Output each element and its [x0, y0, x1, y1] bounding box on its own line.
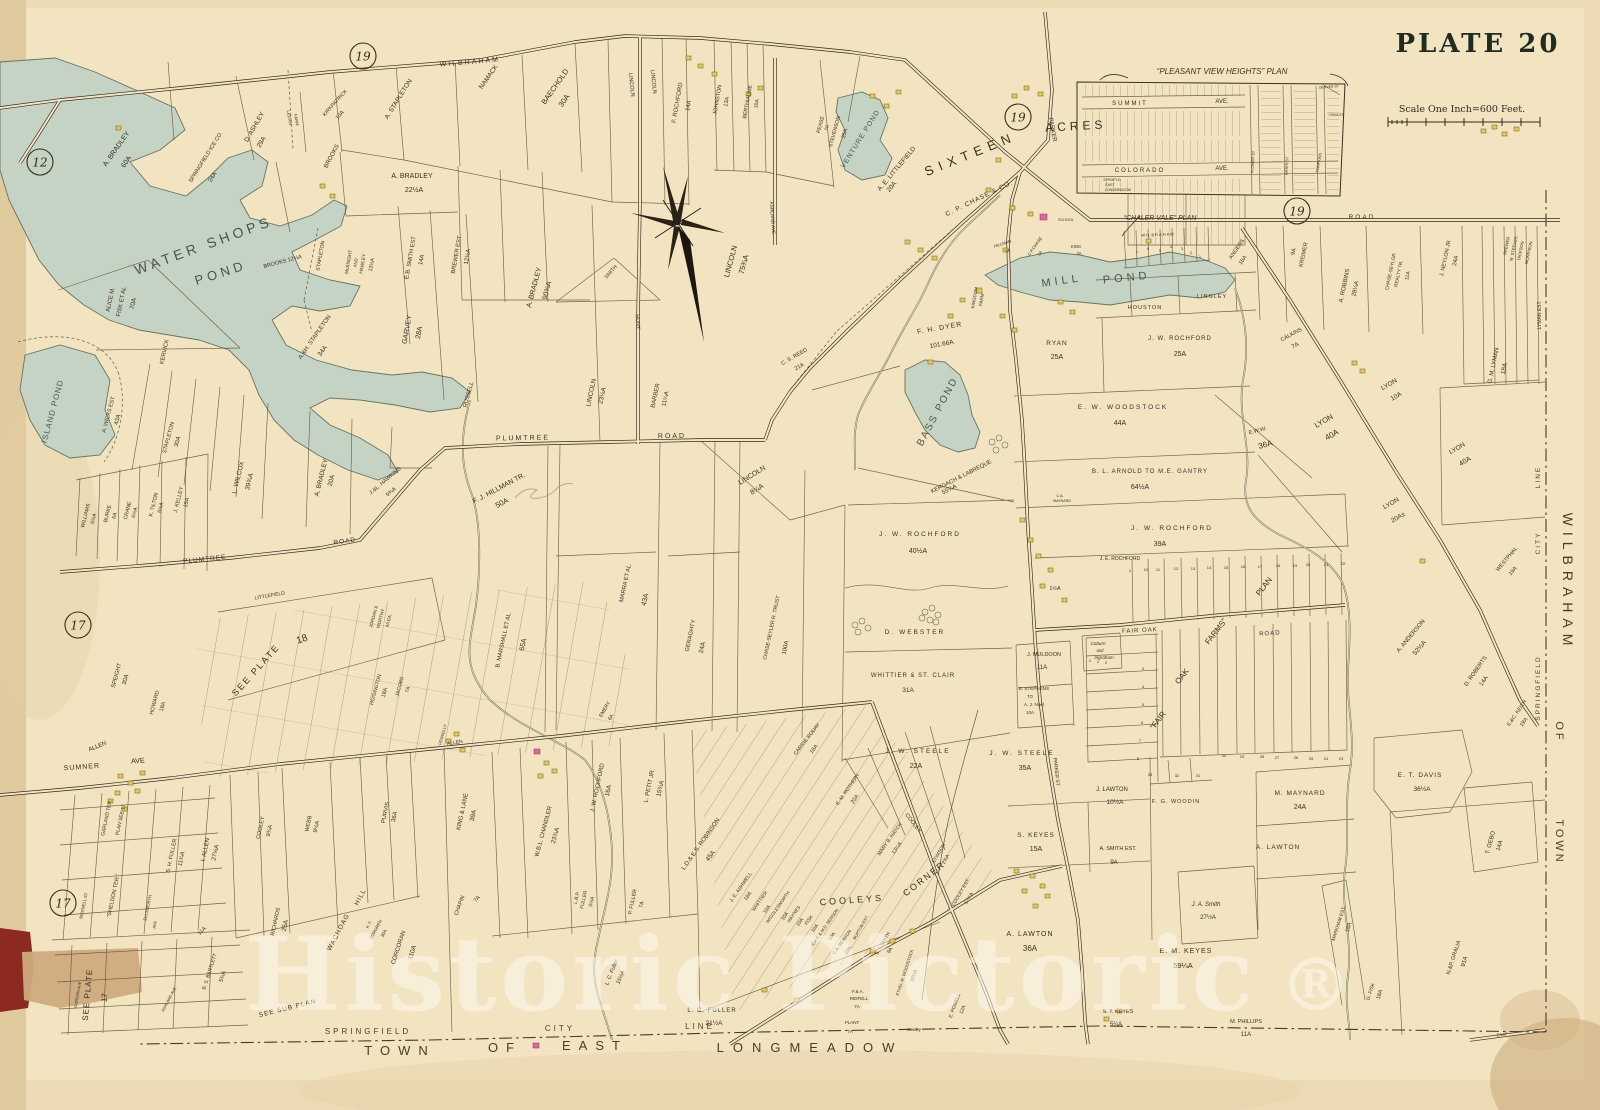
map-label: 40½A — [909, 547, 928, 555]
map-label: AVE. — [1215, 166, 1229, 172]
map-label: 22½A — [405, 186, 424, 194]
map-label: 21 — [1324, 562, 1329, 567]
map-label: 22A — [910, 763, 923, 770]
map-label: 33 — [1148, 772, 1153, 777]
map-label: 39A — [1154, 541, 1167, 548]
map-label: OF — [488, 1040, 522, 1055]
map-label: 18 — [1276, 563, 1281, 568]
scale-caption: Scale One Inch=600 Feet. — [1399, 104, 1525, 115]
map-label: 15 — [1224, 565, 1229, 570]
map-label: 20 — [1306, 562, 1311, 567]
map-label: HOUSTON — [1128, 305, 1162, 311]
map-label: E. T. DAVIS — [1398, 772, 1443, 779]
map-label: 25 — [1309, 756, 1314, 761]
map-label: Coburn — [1090, 641, 1106, 646]
map-label: J. MULDOON — [1027, 652, 1061, 658]
registered-mark-icon: ® — [1280, 942, 1356, 1027]
map-label: 17 — [1258, 564, 1263, 569]
map-label: 15A — [1030, 846, 1043, 853]
map-label: 25A — [1174, 351, 1187, 358]
map-label: 32 — [1175, 773, 1180, 778]
atlas-plate-20: PLATE 20 Scale One Inch=600 Feet. WATER … — [0, 0, 1600, 1110]
map-label: CITY — [1535, 532, 1542, 555]
map-label: AVE — [131, 758, 145, 766]
map-label: 31A — [902, 687, 914, 694]
map-label: and — [1097, 648, 1105, 653]
map-label: 3A — [1076, 251, 1081, 256]
map-label: 29 — [1240, 754, 1245, 759]
map-label: “CHALER VALE” PLAN — [1124, 215, 1198, 222]
school-building — [1040, 214, 1047, 220]
map-label: TOWN — [364, 1043, 435, 1058]
map-label: E. STEPHENS — [1019, 686, 1049, 691]
map-label: 1½A — [1049, 585, 1061, 592]
map-label: J. A. Smith — [1191, 902, 1221, 908]
map-label: J. W. ROCHFORD — [1148, 336, 1212, 342]
map-label: SPRGF'LD — [1103, 178, 1121, 182]
plate-title: PLATE 20 — [1396, 29, 1561, 59]
map-label: 19 — [1293, 563, 1298, 568]
map-label: B. L. ARNOLD TO M.E. GANTRY — [1092, 469, 1208, 475]
map-label: 12 — [1174, 566, 1179, 571]
plate-ref-number: 17 — [70, 619, 86, 633]
map-label: J. W. ROCHFORD — [1131, 525, 1213, 532]
map-label: 36½A — [1414, 785, 1432, 793]
map-label: 10A — [1026, 710, 1035, 715]
paper-stain — [1500, 990, 1580, 1050]
map-label: 24 — [1324, 756, 1329, 761]
map-label: J. W. STEELE — [885, 748, 950, 755]
map-label: A. J. Noel — [1024, 702, 1044, 707]
map-label: LONGMEADOW — [717, 1040, 904, 1055]
map-label: LINGLEY — [1197, 294, 1227, 300]
map-label: C.A. — [1057, 494, 1064, 498]
map-label: LYMAN EST. — [1537, 301, 1543, 330]
plate-ref-number: 17 — [55, 897, 71, 911]
map-label: E. W. WOODSTOCK — [1078, 404, 1169, 411]
plate-ref-number: 19 — [1010, 111, 1026, 125]
map-label: 30 — [1222, 753, 1227, 758]
map-label: 44A — [1114, 420, 1127, 427]
map-label: TO — [1027, 694, 1033, 699]
map-label: EAST — [1105, 183, 1115, 187]
map-label: EAST — [562, 1038, 628, 1053]
map-label: J. LAWTON — [1096, 787, 1128, 793]
map-label: M. MAYNARD — [1274, 790, 1325, 797]
map-label: 64½A — [1131, 483, 1150, 491]
map-label: 28 — [1260, 754, 1265, 759]
map-label: HUNT — [633, 314, 640, 330]
map-label: OF — [1553, 721, 1565, 742]
watermark-text: Historic Pictoric — [244, 915, 1257, 1035]
map-label: J. W. ROCHFORD — [879, 531, 961, 538]
map-label: SPRINGFIELD — [1535, 655, 1542, 720]
map-label: A. BRADLEY — [391, 173, 433, 180]
map-label: RYAN — [1046, 340, 1067, 347]
map-label: 9A — [1110, 860, 1117, 866]
map-label: 22 — [1341, 561, 1346, 566]
map-label: CHINA ST — [1329, 113, 1344, 117]
map-label: ROAD — [658, 433, 686, 440]
map-label: AVE. — [1215, 99, 1229, 105]
map-label: 16 — [1241, 564, 1246, 569]
map-label: “PLEASANT VIEW HEIGHTS” PLAN — [1157, 67, 1288, 76]
map-label: 25A — [1051, 354, 1064, 361]
map-label: F. G. WOODIN — [1152, 799, 1200, 805]
map-label: A. SMITH EST. — [1100, 846, 1137, 852]
map-label: LONGMEADOW — [1105, 188, 1132, 192]
map-label: TOWN — [1553, 819, 1565, 864]
map-label: S. KEYES — [1017, 832, 1055, 839]
map-label: WILBRAHAM — [1560, 513, 1576, 652]
map-label: ROAD — [1349, 214, 1376, 221]
map-label: SCHOOL — [1058, 218, 1074, 222]
map-label: 26 — [1294, 755, 1299, 760]
map-label: 35A — [1019, 765, 1032, 772]
map-label: PLUMTREE — [496, 435, 550, 443]
map-label: MAYNARD — [1053, 499, 1071, 503]
map-label: 13 — [1191, 566, 1196, 571]
plate-ref-number: 12 — [32, 156, 47, 170]
map-label: 10 — [1144, 567, 1149, 572]
map-label: 10½A — [1107, 798, 1125, 806]
map-label: SUMMIT — [1112, 101, 1148, 107]
map-label: LINE — [1535, 466, 1542, 488]
map-label: 17 — [100, 992, 110, 1002]
map-label: 11A — [1037, 665, 1047, 671]
map-label: 14 — [1207, 565, 1212, 570]
map-label: D. WEBSTER — [885, 629, 945, 636]
map-label: WHITTIER & ST. CLAIR — [871, 673, 955, 679]
map-label: A. LAWTON — [1256, 844, 1300, 851]
map-label: 31 — [1196, 773, 1201, 778]
map-label: J. E. ROCHFORD — [1100, 556, 1141, 562]
map-label: J. W. STEELE — [989, 750, 1054, 757]
map-label: 27 — [1275, 755, 1280, 760]
plate-ref-number: 19 — [1289, 205, 1305, 219]
map-label: KING — [1071, 244, 1081, 249]
plate-ref-number: 19 — [355, 50, 371, 64]
watermark: Historic Pictoric® — [244, 915, 1355, 1035]
map-label: 23 — [1339, 756, 1344, 761]
map-label: COLORADO — [1115, 168, 1165, 174]
map-label: 24A — [1294, 804, 1307, 811]
